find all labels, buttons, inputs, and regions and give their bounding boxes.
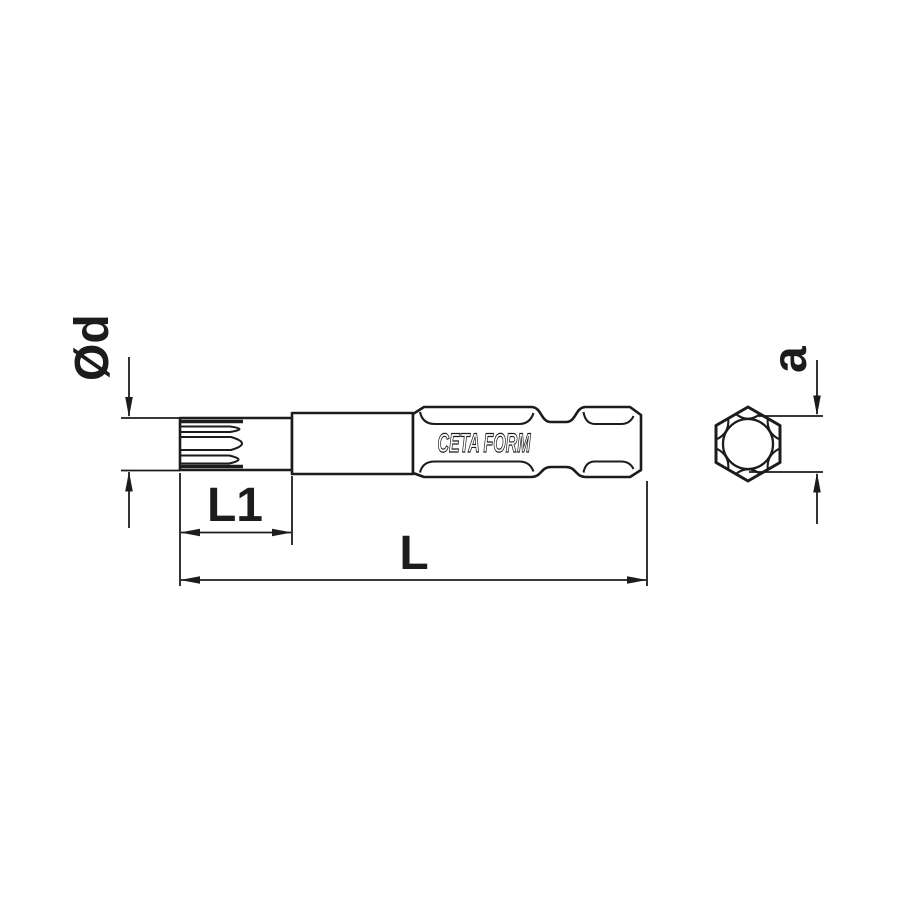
arrowhead-up — [125, 472, 133, 492]
dimension-tip-length: L1 — [180, 473, 292, 586]
dimension-diameter: Ød — [66, 314, 180, 528]
dim-label-diameter: Ød — [66, 314, 119, 381]
brand-text: CETA FORM — [438, 428, 531, 458]
bit-dimension-diagram: CETA FORM Ød — [0, 0, 900, 900]
end-view — [716, 407, 780, 481]
arrowhead-right — [272, 529, 292, 537]
technical-drawing-canvas: CETA FORM Ød — [0, 0, 900, 900]
arrowhead-left — [180, 576, 200, 584]
dim-label-total-length: L — [399, 527, 428, 580]
bit-shaft — [292, 413, 413, 474]
dim-label-hex-width: a — [764, 346, 817, 373]
dim-label-tip-length: L1 — [207, 479, 263, 532]
side-view: CETA FORM — [180, 407, 641, 477]
arrowhead-right — [627, 576, 647, 584]
arrowhead-left — [180, 529, 200, 537]
arrowhead-up — [813, 473, 821, 493]
arrowhead-down — [813, 396, 821, 416]
arrowhead-down — [125, 397, 133, 417]
